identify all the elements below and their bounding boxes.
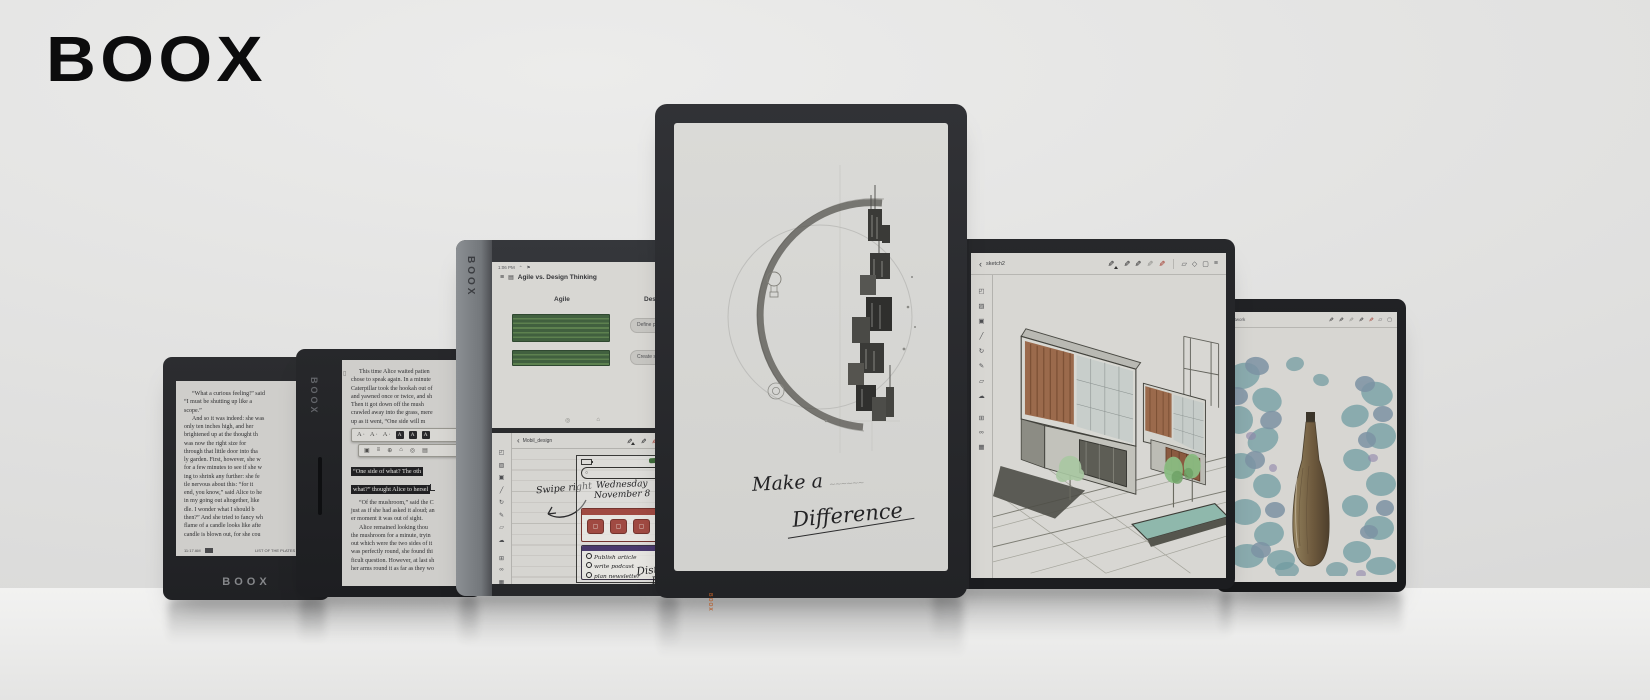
highlight-style-icon[interactable]: A (422, 431, 430, 439)
card-header-stroke (582, 509, 661, 515)
document-footer: ◎ ⌂ (492, 417, 673, 424)
pen-icon[interactable]: ✎ (1347, 317, 1354, 322)
note-tool-rail: ◰ ▨ ▣ ╱ ↻ ✎ ▱ ☁ ⊞ ∞ ▦ (971, 275, 993, 578)
reflection-device-5 (933, 587, 1231, 659)
layers-icon[interactable]: ▨ (499, 462, 505, 469)
notes-pane: ◰ ▨ ▣ ╱ ↻ ✎ ▱ ☁ ⊞ ∞ ▦ ‹ Mobil_design (492, 433, 673, 584)
search-bar-sketch: ○ (581, 467, 662, 479)
reflection-device-3 (460, 594, 678, 666)
red-app-card-sketch: ▢ ▢ ▢ (581, 508, 662, 542)
device-4-large-tablet: Make a ~~~~~~ Difference BOOX (655, 104, 967, 598)
book-paragraph: “What a curious feeling!” said “I must b… (184, 390, 309, 415)
book-paragraph: This time Alice waited patien chose to s… (351, 368, 466, 426)
device-2-screen: ▯ This time Alice waited patien chose to… (342, 360, 473, 586)
lasso-icon[interactable]: ▱ (1378, 317, 1382, 323)
home-icon[interactable]: ⌂ (596, 417, 600, 424)
menu-icon[interactable]: ≡ (377, 447, 381, 453)
device-6-screen: Artwork ✎ ✎ ✎ ✎ ✎ ▱ ▢ (1225, 312, 1397, 582)
battery-doodle (581, 459, 592, 465)
menu-icon[interactable]: ≡ (1214, 260, 1218, 267)
pen-selector: ✎ ✎ ✎ ✎ ✎ ▱ ▢ (1328, 316, 1392, 323)
toolbar-divider (1173, 259, 1174, 269)
copy-icon[interactable]: ▣ (364, 447, 370, 454)
device-3-screen: 1:06 PM ⌃ ⚑ ≡ ▤ Agile vs. Design Thinkin… (492, 262, 673, 584)
app-icons-row: ▢ ▢ ▢ (587, 519, 650, 534)
underline-style-icon[interactable]: A (383, 431, 391, 438)
note-toolbar: ‹ sketch2 ✎ ✎ ✎ ✎ ✎ ▱ ◇ ▢ ≡ (971, 253, 1226, 275)
document-pane: 1:06 PM ⌃ ⚑ ≡ ▤ Agile vs. Design Thinkin… (492, 262, 673, 428)
document-icon: ▤ (508, 274, 514, 281)
red-pen-icon[interactable]: ✎ (1157, 260, 1166, 267)
sync-icon[interactable]: ☁ (978, 392, 985, 400)
boox-logo: BOOX (46, 22, 267, 96)
book-paragraph: “Of the mushroom,” said the C just as if… (351, 499, 466, 524)
handwritten-date: WednesdayNovember 8 (577, 478, 668, 502)
back-icon[interactable]: ‹ (517, 436, 520, 445)
pen-selector: ✎ ✎ ✎ ✎ ✎ ▱ ◇ ▢ ≡ (1107, 259, 1218, 269)
app-icon-sketch: ▢ (587, 519, 604, 534)
search-icon[interactable]: ◎ (565, 417, 570, 424)
book-paragraph: And so it was indeed: she was only ten i… (184, 415, 309, 539)
note-header: ‹ Mobil_design ✎ ✎ ✎ ✎ (512, 433, 673, 449)
clock-text: 1:06 PM (498, 265, 515, 271)
dictionary-icon[interactable]: ▤ (422, 447, 428, 454)
pen-icon[interactable]: ✎ (624, 438, 632, 444)
device-5-note-tablet: BOOX ‹ sketch2 ✎ ✎ ✎ ✎ ✎ ▱ ◇ ▢ ≡ (929, 239, 1235, 589)
checkbox-circle (586, 572, 592, 578)
bottle-neck (1306, 412, 1315, 423)
template-icon[interactable]: ▣ (978, 317, 984, 325)
device-5-screen: ‹ sketch2 ✎ ✎ ✎ ✎ ✎ ▱ ◇ ▢ ≡ ◰ ▨ ▣ (971, 253, 1226, 578)
highlighted-table-cell[interactable] (512, 314, 610, 342)
document-header: ≡ ▤ Agile vs. Design Thinking (500, 274, 597, 281)
document-title: Agile vs. Design Thinking (518, 274, 597, 281)
architecture-sketch (993, 275, 1226, 578)
reader-status-bar: 11:17 AM LIST OF THE PLATES (16/35) (184, 548, 309, 553)
insert-image-icon[interactable]: ▦ (499, 579, 505, 585)
app-icon-sketch: ▢ (610, 519, 627, 534)
reflection-device-2 (300, 595, 478, 661)
studio-backdrop: BOOX “What a curious feeling!” said “I m… (0, 0, 1650, 700)
annotation-action-row: ▣ ≡ ⊕ ⌂ ◎ ▤ (358, 444, 459, 457)
stamp-icon[interactable]: ⊕ (387, 447, 392, 454)
clipboard-icon: ▯ (343, 370, 346, 377)
device-4-screen: Make a ~~~~~~ Difference (674, 123, 948, 571)
brush-icon[interactable]: ▱ (979, 377, 984, 385)
pen-icon[interactable]: ✎ (1327, 317, 1334, 322)
flag-icon: ⚑ (527, 265, 531, 271)
grid-icon[interactable]: ⊞ (499, 555, 504, 562)
app-icon-sketch: ▢ (633, 519, 650, 534)
device-6-tablet: Artwork ✎ ✎ ✎ ✎ ✎ ▱ ▢ (1216, 299, 1406, 592)
pen-icon[interactable]: ✎ (1106, 260, 1115, 267)
underline-style-icon[interactable]: A (370, 431, 378, 438)
pen-icon[interactable]: ✎ (639, 438, 647, 444)
menu-icon[interactable]: ≡ (500, 274, 504, 281)
device-brand-label: BOOX (707, 593, 713, 612)
crescent-city-sketch (722, 159, 937, 459)
battery-icon (205, 548, 213, 553)
pen-icon[interactable]: ✎ (499, 512, 504, 519)
handwritten-checklist: Publish article write podcast plan newsl… (586, 553, 640, 581)
page-turn-button[interactable] (318, 457, 322, 515)
device-brand-label: BOOX (309, 377, 319, 416)
watercolor-canvas[interactable] (1225, 328, 1397, 582)
note-canvas[interactable]: Swipe right ○ WednesdayNovember 8 (512, 449, 673, 584)
link-icon[interactable]: ∞ (979, 429, 984, 436)
reflection-device-6 (1220, 590, 1402, 650)
highlighted-passage: “One side of what? The oth what?” though… (351, 460, 466, 496)
pen-icon[interactable]: ✎ (1357, 317, 1364, 322)
annotation-style-row: A A A A A A (351, 428, 459, 442)
search-icon[interactable]: ◎ (410, 447, 415, 454)
note-toolbar: Artwork ✎ ✎ ✎ ✎ ✎ ▱ ▢ (1225, 312, 1397, 328)
highlighted-table-cell[interactable] (512, 350, 610, 366)
sync-icon[interactable]: ☁ (499, 537, 505, 544)
link-icon[interactable]: ∞ (499, 567, 503, 573)
handwriting-make-a: Make a ~~~~~~ (752, 468, 864, 496)
reflection-device-4 (659, 596, 963, 680)
upload-icon: ⌃ (519, 265, 523, 271)
note-title: Mobil_design (523, 438, 552, 444)
device-3-note-tablet: BOOX 1:06 PM ⌃ ⚑ ≡ ▤ Agile vs. Design Th… (456, 240, 682, 596)
red-pen-icon[interactable]: ✎ (1367, 317, 1374, 322)
insert-image-icon[interactable]: ▦ (978, 443, 984, 451)
shape-icon[interactable]: ╱ (500, 487, 504, 494)
card-header-stroke (582, 546, 661, 551)
column-header-agile: Agile (554, 296, 570, 303)
pen-icon[interactable]: ✎ (1145, 260, 1154, 267)
device-brand-label: BOOX (465, 256, 476, 297)
highlight-style-icon[interactable]: A (409, 431, 417, 439)
book-paragraph: Alice remained looking thou the mushroom… (351, 524, 466, 574)
highlight-line: “One side of what? The oth (351, 467, 423, 476)
highlight-line: what?” thought Alice to hersel (351, 485, 430, 494)
layers-icon[interactable]: ▨ (978, 302, 984, 310)
undo-icon[interactable]: ↻ (499, 499, 504, 506)
bottle-body (1293, 422, 1329, 566)
handwriting-difference: Difference (791, 498, 904, 532)
fill-icon[interactable]: ✎ (979, 362, 984, 370)
watercolor-painting (1225, 328, 1397, 576)
pen-icon[interactable]: ✎ (1337, 317, 1344, 322)
lasso-icon[interactable]: ▱ (1182, 260, 1187, 268)
insert-icon[interactable]: ▢ (1202, 260, 1209, 268)
fullscreen-icon[interactable]: ◰ (978, 287, 984, 295)
note-title: sketch2 (986, 261, 1005, 267)
shape-icon[interactable]: ◇ (1192, 260, 1197, 268)
home-icon[interactable]: ⌂ (399, 447, 403, 453)
sketch-canvas[interactable] (993, 275, 1226, 578)
shape-icon[interactable]: ╱ (980, 332, 984, 340)
underline-style-icon[interactable]: A (357, 431, 365, 438)
text-icon[interactable]: ⊞ (979, 414, 984, 422)
template-icon[interactable]: ▣ (499, 474, 505, 481)
shape-icon[interactable]: ▢ (1387, 317, 1392, 323)
magnifier-icon: ○ (585, 470, 588, 476)
device-2-ereader: BOOX ▯ This time Alice waited patien cho… (296, 349, 482, 597)
text-selection-popup: A A A A A A ▣ ≡ ⊕ ⌂ ◎ ▤ (351, 428, 459, 457)
selection-handle[interactable] (430, 484, 435, 491)
status-bar: 1:06 PM ⌃ ⚑ (498, 265, 531, 271)
clock-text: 11:17 AM (184, 548, 201, 553)
fullscreen-icon[interactable]: ◰ (499, 449, 505, 456)
pen-icon[interactable]: ✎ (1122, 260, 1131, 267)
back-icon[interactable]: ‹ (979, 259, 982, 269)
note-tool-rail: ◰ ▨ ▣ ╱ ↻ ✎ ▱ ☁ ⊞ ∞ ▦ (492, 433, 512, 584)
pen-icon[interactable]: ✎ (1133, 260, 1142, 267)
pencil-scribble: ~~~~~~ (829, 478, 864, 489)
lasso-icon[interactable]: ↻ (979, 347, 984, 355)
checkbox-circle (586, 562, 592, 568)
device-3-left-bezel: BOOX (456, 240, 492, 596)
fill-icon[interactable]: ▱ (499, 524, 504, 531)
highlight-style-icon[interactable]: A (396, 431, 404, 439)
checkbox-circle (586, 553, 592, 559)
